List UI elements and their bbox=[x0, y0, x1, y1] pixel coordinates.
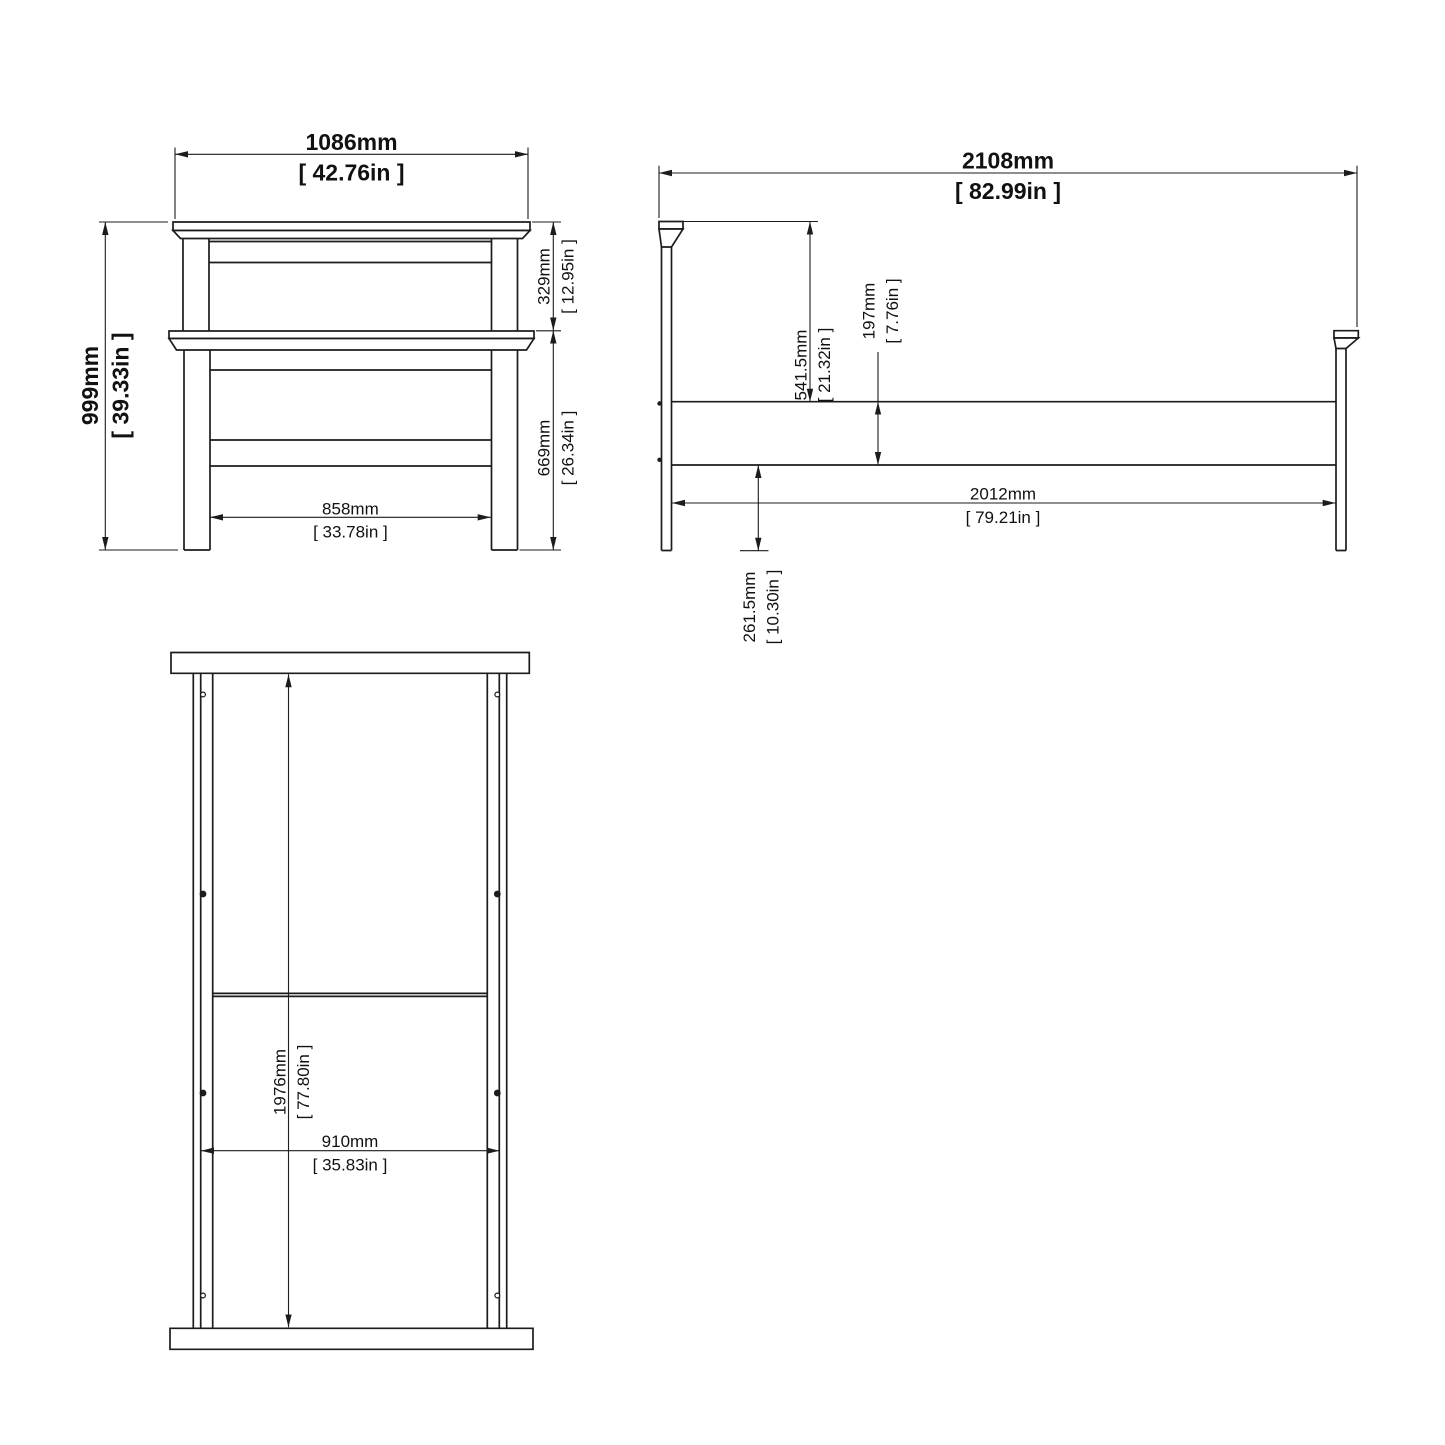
bed-frame-dimension-drawing: 1086mm [ 42.76in ] 999mm [ 39.33in ] 329… bbox=[0, 0, 1445, 1445]
side-rail-height-mm: 197mm bbox=[860, 283, 879, 340]
dim-front-overall-width: 1086mm [ 42.76in ] bbox=[175, 129, 528, 219]
top-side-rails bbox=[193, 673, 506, 1328]
top-inner-width-in: [ 35.83in ] bbox=[313, 1156, 388, 1175]
side-footboard bbox=[1334, 331, 1358, 551]
front-view: 1086mm [ 42.76in ] 999mm [ 39.33in ] 329… bbox=[77, 129, 578, 550]
front-top-section-mm: 329mm bbox=[535, 248, 554, 305]
top-headboard-bar bbox=[171, 653, 529, 674]
headboard-screw-dot-lower bbox=[657, 458, 661, 462]
headboard-screw-dot-upper bbox=[657, 401, 661, 405]
front-headboard-top-cap bbox=[173, 222, 530, 239]
side-rail bbox=[672, 402, 1336, 465]
side-view: 2108mm [ 82.99in ] 541.5mm [ 21.32in ] 1… bbox=[657, 148, 1358, 645]
front-inner-width-in: [ 33.78in ] bbox=[313, 522, 388, 541]
dim-front-top-section: 329mm [ 12.95in ] bbox=[532, 222, 577, 331]
side-rail-height-in: [ 7.76in ] bbox=[883, 278, 902, 343]
side-floor-to-rail-in: [ 10.30in ] bbox=[764, 570, 783, 645]
front-overall-width-in: [ 42.76in ] bbox=[298, 160, 404, 186]
front-overall-width-mm: 1086mm bbox=[305, 129, 397, 155]
dim-front-lower-section: 669mm [ 26.34in ] bbox=[520, 331, 578, 551]
dim-front-overall-height: 999mm [ 39.33in ] bbox=[77, 222, 178, 550]
front-inner-width-mm: 858mm bbox=[322, 499, 379, 518]
front-lower-section-mm: 669mm bbox=[535, 420, 554, 477]
front-headboard-lower-section bbox=[184, 350, 518, 550]
top-inner-width-mm: 910mm bbox=[322, 1132, 379, 1151]
side-floor-to-rail-mm: 261.5mm bbox=[740, 572, 759, 643]
dim-side-rail-height: 197mm [ 7.76in ] bbox=[860, 278, 903, 465]
top-screw-holes bbox=[200, 692, 501, 1298]
technical-drawing-page: 1086mm [ 42.76in ] 999mm [ 39.33in ] 329… bbox=[0, 0, 1445, 1445]
dim-top-inner-width: 910mm [ 35.83in ] bbox=[201, 1132, 499, 1175]
dim-side-overall-length: 2108mm [ 82.99in ] bbox=[659, 148, 1357, 327]
top-center-cross-rail bbox=[213, 993, 488, 996]
side-headboard-to-rail-mm: 541.5mm bbox=[792, 330, 811, 401]
front-headboard-mid-cap bbox=[169, 331, 534, 350]
side-inner-length-in: [ 79.21in ] bbox=[966, 508, 1041, 527]
dim-top-inner-length: 1976mm [ 77.80in ] bbox=[270, 674, 313, 1327]
front-headboard-upper-section bbox=[183, 239, 518, 332]
dim-side-floor-to-rail: 261.5mm [ 10.30in ] bbox=[740, 465, 783, 644]
side-overall-length-mm: 2108mm bbox=[962, 148, 1054, 174]
front-top-section-in: [ 12.95in ] bbox=[558, 239, 577, 314]
top-inner-length-in: [ 77.80in ] bbox=[294, 1045, 313, 1120]
top-footboard-bar bbox=[170, 1328, 533, 1349]
dim-side-headboard-to-rail: 541.5mm [ 21.32in ] bbox=[683, 222, 834, 403]
front-lower-section-in: [ 26.34in ] bbox=[559, 411, 578, 486]
top-inner-length-mm: 1976mm bbox=[270, 1049, 289, 1115]
dim-front-inner-width: 858mm [ 33.78in ] bbox=[210, 499, 491, 541]
front-overall-height-in: [ 39.33in ] bbox=[108, 332, 134, 438]
dim-side-inner-length: 2012mm [ 79.21in ] bbox=[672, 485, 1336, 528]
side-overall-length-in: [ 82.99in ] bbox=[955, 178, 1061, 204]
side-headboard bbox=[657, 222, 683, 551]
front-overall-height-mm: 999mm bbox=[77, 346, 103, 425]
side-inner-length-mm: 2012mm bbox=[970, 485, 1036, 504]
top-view: 1976mm [ 77.80in ] 910mm [ 35.83in ] bbox=[170, 653, 533, 1350]
side-headboard-to-rail-in: [ 21.32in ] bbox=[815, 328, 834, 403]
